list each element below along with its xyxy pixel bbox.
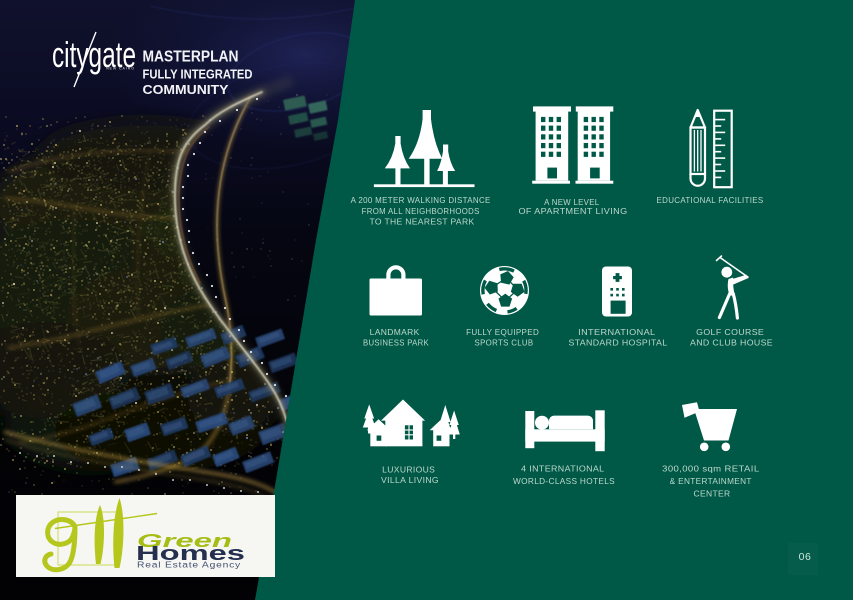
svg-text:MASTERPLAN: MASTERPLAN [143, 49, 239, 66]
svg-text:EDUCATIONAL FACILITIES: EDUCATIONAL FACILITIES [657, 195, 764, 205]
svg-text:GOLF COURSE AND CLUB HOUSE: GOLF COURSE AND CLUB HOUSE [690, 327, 773, 348]
svg-text:A 200 METER WALKING DISTANCE F: A 200 METER WALKING DISTANCE FROM ALL NE… [351, 195, 494, 227]
svg-text:06: 06 [799, 551, 812, 563]
svg-text:NEW CAIRO: NEW CAIRO [106, 67, 135, 71]
svg-text:LUXURIOUS VILLA LIVING: LUXURIOUS VILLA LIVING [381, 465, 439, 486]
svg-text:FULLY INTEGRATED: FULLY INTEGRATED [143, 67, 253, 82]
svg-text:LANDMARK BUSINESS PARK: LANDMARK BUSINESS PARK [363, 327, 429, 348]
svg-text:FULLY EQUIPPED SPORTS CLUB: FULLY EQUIPPED SPORTS CLUB [466, 327, 542, 348]
svg-text:INTERNATIONAL STANDARD HOSPITA: INTERNATIONAL STANDARD HOSPITAL [569, 327, 668, 348]
svg-text:COMMUNITY: COMMUNITY [143, 82, 229, 97]
svg-text:Real Estate Agency: Real Estate Agency [137, 561, 241, 570]
